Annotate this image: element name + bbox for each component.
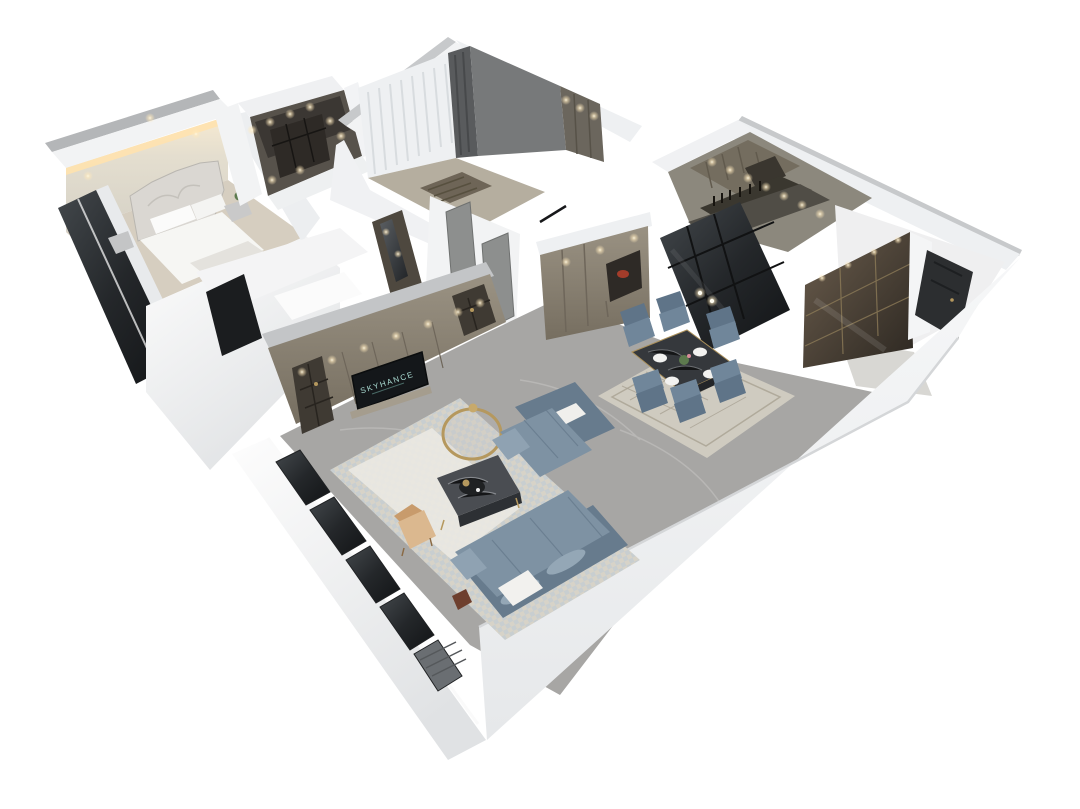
downlight — [394, 250, 402, 258]
downlight — [629, 233, 639, 243]
plate — [653, 354, 667, 363]
downlight — [595, 245, 605, 255]
door-handle — [950, 298, 954, 302]
downlight — [870, 248, 878, 256]
downlight — [818, 274, 826, 282]
ceiling-sparkle — [145, 113, 155, 123]
plate — [693, 348, 707, 357]
pendant-light — [710, 299, 714, 303]
downlight — [575, 103, 585, 113]
downlight — [844, 261, 852, 269]
downlight — [561, 95, 571, 105]
pendant-light — [698, 291, 702, 295]
downlight — [382, 228, 390, 236]
floorplan-render: SKYHANCE — [0, 0, 1080, 809]
downlight — [589, 111, 599, 121]
floorplan-svg: SKYHANCE — [0, 0, 1080, 809]
round-gold-mirror — [443, 409, 501, 459]
shelf-decor — [314, 382, 318, 386]
gold-decor — [463, 480, 470, 487]
cup — [476, 488, 480, 492]
plate — [665, 377, 679, 386]
centerpiece-flowers — [687, 354, 691, 358]
shelf-decor — [470, 308, 474, 312]
downlight — [894, 236, 902, 244]
downlight — [561, 257, 571, 267]
ceiling-sparkle — [191, 129, 201, 139]
ceiling-sparkle — [83, 171, 93, 181]
mirror-stand — [469, 404, 478, 413]
red-decor — [617, 270, 629, 278]
